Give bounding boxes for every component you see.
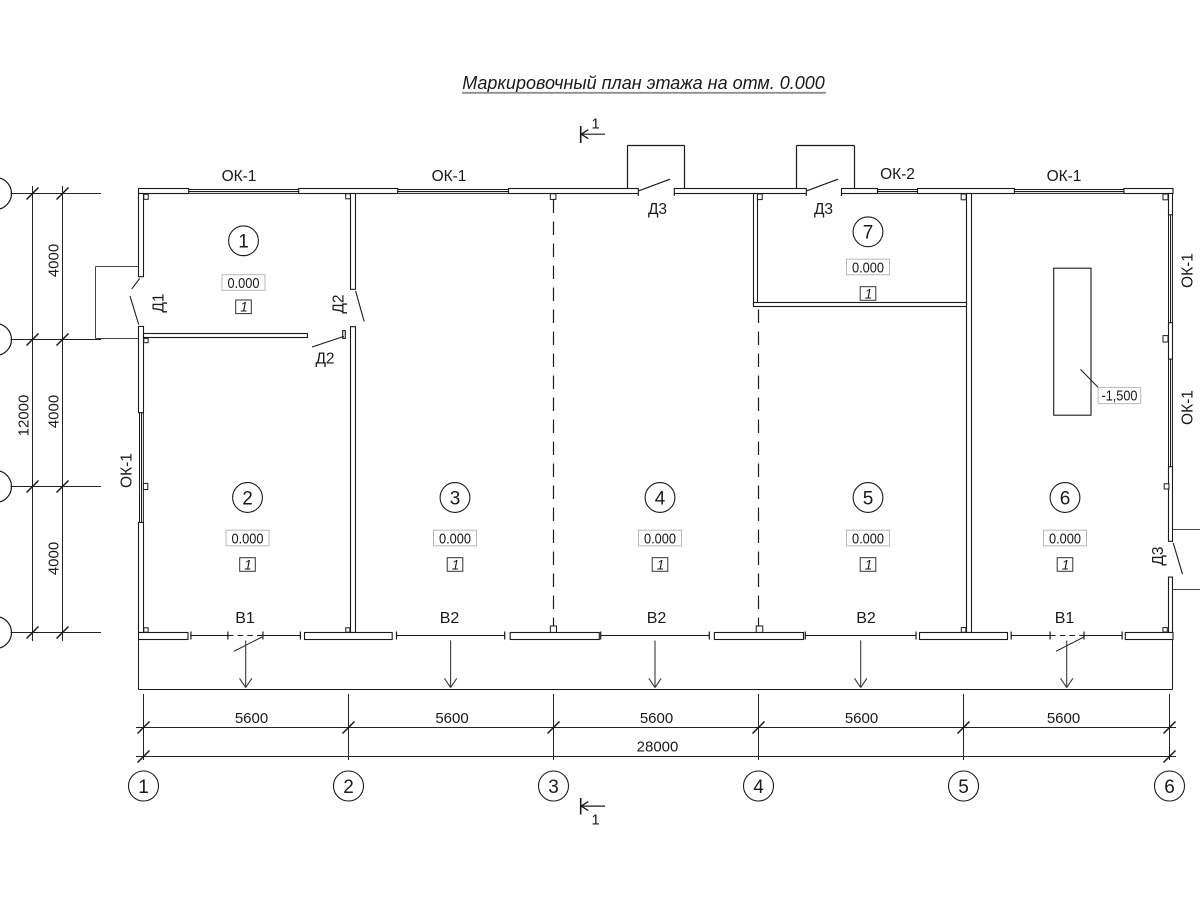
svg-text:В1: В1 — [1055, 610, 1075, 627]
svg-text:В2: В2 — [856, 610, 876, 627]
svg-text:0.000: 0.000 — [644, 530, 676, 547]
svg-text:Д2: Д2 — [315, 351, 334, 368]
svg-text:ОК-1: ОК-1 — [1047, 168, 1082, 185]
svg-text:5600: 5600 — [1047, 710, 1080, 727]
svg-text:5600: 5600 — [435, 710, 468, 727]
svg-text:5: 5 — [958, 777, 969, 798]
svg-text:1: 1 — [452, 557, 460, 572]
svg-text:Д3: Д3 — [1150, 546, 1167, 565]
svg-text:28000: 28000 — [637, 739, 679, 756]
svg-text:5: 5 — [863, 488, 874, 509]
svg-text:5600: 5600 — [640, 710, 673, 727]
svg-text:Д1: Д1 — [151, 293, 168, 312]
svg-text:3: 3 — [450, 488, 461, 509]
svg-text:0.000: 0.000 — [852, 259, 884, 276]
svg-text:ОК-1: ОК-1 — [432, 168, 467, 185]
svg-text:1: 1 — [657, 557, 665, 572]
svg-text:4: 4 — [753, 777, 764, 798]
svg-text:1: 1 — [591, 115, 599, 132]
svg-text:12000: 12000 — [16, 395, 33, 437]
svg-text:Д3: Д3 — [648, 201, 667, 218]
svg-text:Маркировочный план этажа на от: Маркировочный план этажа на отм. 0.000 — [462, 73, 825, 93]
svg-text:6: 6 — [1164, 777, 1175, 798]
svg-text:4000: 4000 — [46, 395, 63, 428]
svg-text:-1,500: -1,500 — [1102, 388, 1138, 405]
svg-text:4000: 4000 — [46, 244, 63, 277]
svg-text:ОК-1: ОК-1 — [1180, 253, 1197, 288]
svg-text:1: 1 — [1062, 557, 1070, 572]
svg-text:3: 3 — [548, 777, 559, 798]
svg-text:В1: В1 — [235, 610, 255, 627]
svg-text:1: 1 — [591, 812, 599, 829]
svg-text:В2: В2 — [440, 610, 460, 627]
svg-text:Д2: Д2 — [331, 294, 348, 313]
svg-text:7: 7 — [863, 223, 874, 244]
svg-text:5600: 5600 — [235, 710, 268, 727]
svg-text:1: 1 — [138, 777, 149, 798]
svg-text:5600: 5600 — [845, 710, 878, 727]
svg-text:4000: 4000 — [46, 542, 63, 575]
svg-text:0.000: 0.000 — [1049, 530, 1081, 547]
svg-text:1: 1 — [244, 557, 252, 572]
svg-text:ОК-1: ОК-1 — [222, 168, 257, 185]
svg-text:0.000: 0.000 — [232, 530, 264, 547]
svg-text:6: 6 — [1060, 488, 1071, 509]
svg-text:ОК-2: ОК-2 — [880, 166, 915, 183]
svg-text:2: 2 — [343, 777, 354, 798]
svg-text:ОК-1: ОК-1 — [1180, 390, 1197, 425]
svg-text:ОК-1: ОК-1 — [119, 453, 136, 488]
svg-text:Д3: Д3 — [814, 201, 833, 218]
svg-text:4: 4 — [655, 488, 666, 509]
svg-text:0.000: 0.000 — [852, 530, 884, 547]
svg-text:0.000: 0.000 — [439, 530, 471, 547]
svg-text:1: 1 — [865, 557, 873, 572]
svg-text:В2: В2 — [647, 610, 667, 627]
svg-text:1: 1 — [240, 300, 248, 315]
svg-text:1: 1 — [865, 286, 873, 301]
svg-text:0.000: 0.000 — [228, 275, 260, 292]
svg-text:2: 2 — [242, 488, 253, 509]
svg-text:1: 1 — [238, 232, 249, 253]
